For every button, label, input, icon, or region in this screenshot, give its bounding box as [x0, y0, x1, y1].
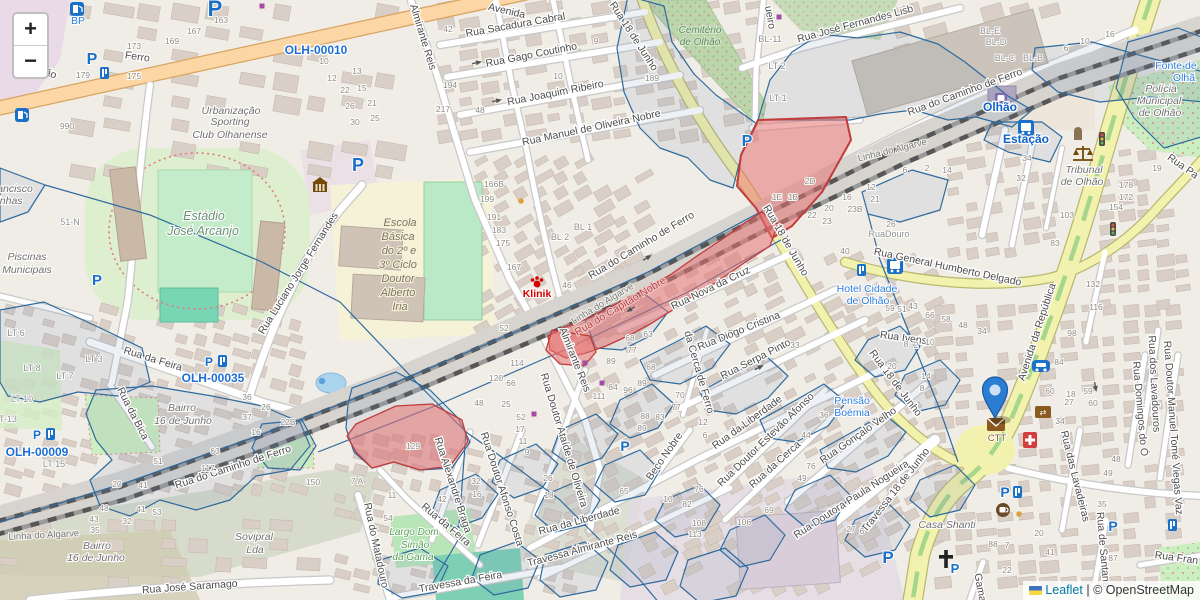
map-label: Lda: [246, 544, 264, 556]
map-label: 22: [340, 85, 350, 95]
parking-icon: P: [1108, 518, 1117, 534]
map-label: 51: [153, 456, 163, 466]
map-label: 26: [261, 402, 271, 412]
map-label: 76: [806, 461, 816, 471]
map-label: 167: [187, 26, 201, 36]
map-label: 8: [904, 339, 909, 349]
map-label: 106: [737, 517, 751, 527]
map-label: José Arcanjo: [166, 224, 239, 238]
map-label: 26: [345, 101, 355, 111]
parking-icon: P: [882, 548, 893, 567]
map-label: 6: [703, 430, 708, 440]
map-label: 58: [941, 314, 951, 324]
map-label: 16: [251, 427, 261, 437]
parking-icon: P: [205, 355, 213, 369]
map-tiles: PPPPPPPPPPPP⇄ AvenidaOlhãoFerroBP1631671…: [0, 0, 1200, 600]
map-label: 120: [489, 373, 503, 383]
map-label: 35: [1097, 499, 1107, 509]
map-label: 12: [698, 417, 708, 427]
ukraine-flag-icon: [1029, 586, 1042, 595]
map-label: 22B: [280, 417, 295, 427]
map-label: Club Olhanense: [192, 129, 267, 141]
map-label: 98: [1067, 328, 1077, 338]
map-label: 16: [842, 192, 852, 202]
zoom-out-button[interactable]: −: [14, 46, 47, 77]
svg-text:P: P: [1108, 518, 1117, 534]
map-label: 60: [1088, 398, 1098, 408]
map-label: 83: [1050, 238, 1060, 248]
map-label: LT 10: [11, 394, 33, 404]
map-label: LT 2: [768, 61, 785, 71]
map-label: 2D: [805, 176, 816, 186]
map-label: Largo Dom: [389, 527, 438, 538]
map-label: 48: [958, 320, 968, 330]
map-label: 113: [688, 529, 702, 539]
map-label: Hotel Cidade: [837, 283, 898, 295]
odot-icon: [518, 198, 524, 204]
map-label: 10: [925, 337, 935, 347]
map-label: 116: [1089, 302, 1103, 312]
map-label: 27: [1064, 397, 1074, 407]
map-label: 77: [627, 345, 637, 355]
attribution-bar: Leaflet | © OpenStreetMap: [1023, 581, 1200, 600]
zoom-control: + −: [12, 12, 49, 79]
meter-icon: [46, 428, 55, 440]
map-label: 11: [388, 490, 397, 500]
map-label: 169: [165, 36, 179, 46]
map-label: 16 de Junho: [67, 552, 125, 564]
map-label: 48: [1111, 454, 1121, 464]
svg-text:P: P: [352, 155, 364, 175]
map-label: 18: [544, 490, 554, 500]
map-label: Sporting: [210, 116, 249, 128]
map-label: Sovipral: [235, 531, 274, 543]
map-label: 16: [1105, 29, 1115, 39]
map-label: 1B: [788, 192, 799, 202]
map-label: Alberto: [380, 287, 416, 299]
map-label: 117: [201, 463, 215, 473]
parking-icon: P: [951, 561, 960, 576]
svg-text:P: P: [882, 548, 893, 567]
map-label: 49: [797, 473, 807, 483]
svg-text:P: P: [205, 355, 213, 369]
parking-icon: P: [92, 272, 102, 289]
map-label: 7: [1005, 540, 1010, 550]
parking-icon: P: [742, 133, 753, 150]
map-label: CTT: [988, 433, 1007, 444]
map-label: 8: [920, 383, 925, 393]
map-label: 16 de Junho: [154, 415, 212, 427]
pdot-icon: [600, 381, 605, 386]
svg-text:⇄: ⇄: [1040, 408, 1047, 417]
map-label: 10: [663, 494, 673, 504]
car-icon: [1032, 360, 1050, 372]
fuel-icon: [15, 108, 29, 122]
map-label: Cemitério: [679, 25, 722, 36]
map-label: LT 8: [23, 363, 40, 373]
map-label: 68: [646, 362, 656, 372]
map-label: 54: [383, 513, 393, 523]
map-label: Iria: [392, 301, 407, 313]
map-label: 3º Ciclo: [379, 259, 417, 271]
map-label: Estação: [1003, 132, 1049, 146]
map-label: 46: [562, 280, 572, 290]
map-label: 6: [1064, 43, 1069, 53]
map-label: 42: [437, 494, 447, 504]
svg-text:P: P: [742, 133, 753, 150]
map-label: 88: [988, 539, 998, 549]
map-label: 26: [886, 219, 896, 229]
map-label: 33: [790, 340, 800, 350]
map-label: Tribunal: [1065, 164, 1103, 176]
map-label: 10: [319, 56, 329, 66]
map-label: 66: [506, 378, 516, 388]
map-label: 83: [655, 412, 665, 422]
map-label: Doutor: [381, 273, 415, 285]
zoom-in-button[interactable]: +: [14, 14, 47, 46]
parking-icon: P: [1000, 484, 1009, 500]
meter-icon: [1013, 486, 1022, 498]
map-label: LT 3: [85, 354, 102, 364]
map-label: 51-N: [60, 217, 80, 227]
map-label: 129: [406, 441, 420, 451]
map-label: 60: [1045, 386, 1055, 396]
pdot-icon: [532, 412, 537, 417]
map-label: 20: [1034, 528, 1044, 538]
meter-icon: [1168, 519, 1177, 531]
map-label: BL 1: [574, 222, 592, 232]
map-label: 65: [619, 486, 629, 496]
parking-icon: P: [87, 51, 98, 68]
map-label: 2: [914, 340, 919, 350]
map-label: 41: [138, 480, 148, 490]
svg-text:P: P: [33, 428, 41, 442]
map-label: 16: [472, 489, 482, 499]
map-label: 26: [543, 473, 553, 483]
map-label: 34: [977, 326, 987, 336]
map-label: de Olhão: [1061, 176, 1104, 188]
map-label: Bairro: [83, 540, 111, 552]
map-label: 166B: [484, 179, 504, 189]
map-label: 163: [214, 15, 228, 25]
map-label: 25: [501, 399, 511, 409]
map-label: de Olhão: [1139, 107, 1182, 119]
parking-icon: P: [620, 438, 629, 454]
traffic-icon: [1110, 222, 1116, 236]
map-label: 53: [152, 507, 162, 517]
map-label: 173: [127, 41, 141, 51]
fuel-icon: [70, 2, 84, 16]
map-label: 132: [1086, 279, 1100, 289]
map-label: OLH-00010: [285, 43, 348, 57]
meter-icon: [857, 264, 866, 276]
parking-icon: P: [33, 428, 41, 442]
map-label: 179: [76, 70, 90, 80]
map-label: 87: [1108, 553, 1118, 563]
map-label: 43: [908, 301, 918, 311]
svg-text:P: P: [951, 561, 960, 576]
svg-text:P: P: [87, 51, 98, 68]
map-label: Pensão: [834, 395, 870, 407]
map-label: ancisco: [0, 183, 33, 195]
map-label: LT 7: [56, 371, 73, 381]
map-label: 21: [367, 98, 377, 108]
map-label: 990: [60, 121, 74, 131]
exchange-icon: ⇄: [1035, 406, 1051, 418]
map-label: 17: [515, 424, 525, 434]
map-label: 6: [860, 526, 865, 536]
map-label: 59: [885, 303, 895, 313]
map-label: 103: [1060, 210, 1074, 220]
map-label: 59: [1083, 386, 1093, 396]
map-label: 21: [870, 194, 880, 204]
map-label: 76: [694, 484, 704, 494]
map-label: RuaDouro: [868, 229, 909, 239]
parking-icon: P: [352, 155, 364, 175]
map-label: 51: [897, 304, 907, 314]
map-label: 36: [242, 392, 252, 402]
map-label: BL-D: [986, 37, 1007, 47]
map-label: 35: [90, 525, 100, 535]
map-label: 41: [136, 504, 146, 514]
map-canvas[interactable]: PPPPPPPPPPPP⇄ AvenidaOlhãoFerroBP1631671…: [0, 0, 1200, 600]
map-label: 43: [89, 514, 99, 524]
map-label: 27: [846, 524, 856, 534]
map-label: 175: [496, 238, 510, 248]
map-label: 10: [1080, 36, 1090, 46]
map-label: OLH-00035: [182, 371, 245, 385]
map-label: 9: [525, 447, 530, 457]
map-label: do 2º e: [382, 245, 417, 257]
map-label: 11: [519, 436, 528, 446]
map-label: 22: [807, 210, 817, 220]
map-label: 34: [1022, 153, 1032, 163]
map-label: 84: [1054, 357, 1064, 367]
map-label: 66: [925, 310, 935, 320]
map-label: 20: [824, 203, 834, 213]
map-label: LT 15: [43, 459, 65, 469]
map-label: Boémia: [834, 407, 870, 419]
map-label: Fonte de: [1155, 60, 1197, 72]
map-label: 63: [210, 446, 220, 456]
map-label: BL-C: [995, 53, 1016, 63]
map-label: BL-11: [758, 34, 781, 44]
map-label: 68: [625, 333, 635, 343]
map-label: Estádio: [183, 209, 225, 223]
map-label: Simão: [401, 540, 430, 551]
map-label: 6: [903, 165, 908, 175]
map-label: Bairro: [168, 402, 196, 414]
map-label: Básica: [381, 231, 414, 243]
map-label: LT 1: [769, 93, 786, 103]
map-label: 199: [480, 194, 494, 204]
map-label: 22: [1002, 565, 1012, 575]
map-label: 150: [306, 477, 320, 487]
map-label: 63: [643, 329, 653, 339]
map-label: 77: [671, 402, 681, 412]
map-label: 114: [510, 358, 524, 368]
map-label: 10: [553, 71, 563, 81]
map-label: LT 6: [7, 328, 24, 338]
map-label: 88: [640, 411, 650, 421]
map-label: de Olhão: [680, 37, 721, 48]
map-label: 89: [637, 378, 647, 388]
map-label: Municipais: [2, 264, 52, 276]
map-label: 89: [637, 423, 647, 433]
map-label: 36: [819, 410, 829, 420]
map-label: 44: [801, 430, 811, 440]
map-label: 48: [474, 398, 484, 408]
map-label: 14: [921, 371, 931, 381]
map-label: 25: [370, 113, 380, 123]
map-label: 82: [682, 499, 692, 509]
map-label: 23: [822, 216, 832, 226]
map-label: 2: [925, 163, 930, 173]
map-label: Piscinas: [7, 251, 47, 263]
map-label: 34: [1055, 416, 1065, 426]
map-label: 48: [475, 105, 485, 115]
map-label: 32: [471, 476, 481, 486]
map-label: BL-B: [1023, 53, 1043, 63]
map-label: 37: [242, 412, 252, 422]
map-label: T-13: [0, 414, 17, 424]
map-label: 48: [99, 503, 109, 513]
map-label: 172: [1119, 192, 1133, 202]
map-label: OLH-00009: [6, 445, 69, 459]
bdot-icon: [319, 378, 325, 384]
map-label: 14: [942, 165, 952, 175]
map-label: 111: [593, 391, 606, 401]
map-label: 15: [357, 83, 367, 93]
map-label: 40: [840, 246, 850, 256]
map-label: Casa Shanti: [918, 519, 976, 531]
svg-text:P: P: [620, 438, 629, 454]
map-label: 69: [764, 505, 774, 515]
map-label: 9: [594, 36, 599, 46]
map-label: 84: [608, 382, 618, 392]
map-label: 49: [1103, 468, 1113, 478]
osm-copyright: © OpenStreetMap: [1093, 583, 1194, 597]
map-label: 96: [623, 385, 633, 395]
leaflet-link[interactable]: Leaflet: [1045, 583, 1083, 597]
map-label: BL 2: [551, 232, 569, 242]
map-label: 20: [112, 479, 122, 489]
map-label: de Olhão: [847, 295, 890, 307]
map-label: 217: [436, 104, 450, 114]
map-label: 108: [692, 518, 706, 528]
map-label: Municipal: [1137, 95, 1182, 107]
meter-icon: [100, 67, 109, 79]
svg-text:P: P: [1000, 484, 1009, 500]
map-label: Olhão: [983, 100, 1017, 114]
map-label: 183: [492, 225, 506, 235]
traffic-icon: [1099, 132, 1105, 146]
map-label: 70: [675, 390, 685, 400]
odot-icon: [1016, 511, 1022, 517]
map-label: inhas: [0, 195, 23, 207]
cafe-icon: [996, 503, 1010, 517]
map-label: 52: [516, 412, 526, 422]
meter-icon: [218, 355, 227, 367]
map-label: 154: [1109, 202, 1123, 212]
map-label: 1E: [772, 192, 783, 202]
map-label: 42: [443, 24, 453, 34]
map-label: 52: [499, 323, 509, 333]
map-label: 189: [645, 73, 659, 83]
map-label: 178: [1119, 180, 1133, 190]
map-label: 32: [1016, 173, 1026, 183]
map-label: 12: [866, 182, 876, 192]
map-label: 13: [352, 66, 362, 76]
map-label: 191: [487, 212, 501, 222]
map-label: Escola: [383, 217, 416, 229]
map-label: Klinik: [523, 288, 552, 300]
svg-text:P: P: [92, 272, 102, 289]
map-label: 194: [443, 80, 457, 90]
map-label: 32: [122, 516, 132, 526]
map-label: 7 A: [351, 476, 364, 486]
pharmacy-icon: [1023, 432, 1037, 448]
map-label: 167: [507, 262, 521, 272]
map-label: 20: [887, 361, 897, 371]
map-label: BL-E: [980, 26, 1000, 36]
memorial-icon: [1074, 127, 1082, 140]
map-label: 23B: [847, 204, 862, 214]
attribution-separator: |: [1086, 583, 1089, 597]
map-label: BP: [71, 15, 85, 27]
map-label: 19: [1152, 163, 1162, 173]
map-label: Polícia: [1145, 83, 1177, 95]
map-label: 12: [327, 73, 337, 83]
map-label: 175: [127, 71, 141, 81]
map-label: 89: [606, 356, 616, 366]
map-label: 30: [350, 117, 360, 127]
pdot-icon: [260, 4, 265, 9]
map-label: 41: [1045, 547, 1055, 557]
map-label: da Gama: [392, 552, 434, 563]
